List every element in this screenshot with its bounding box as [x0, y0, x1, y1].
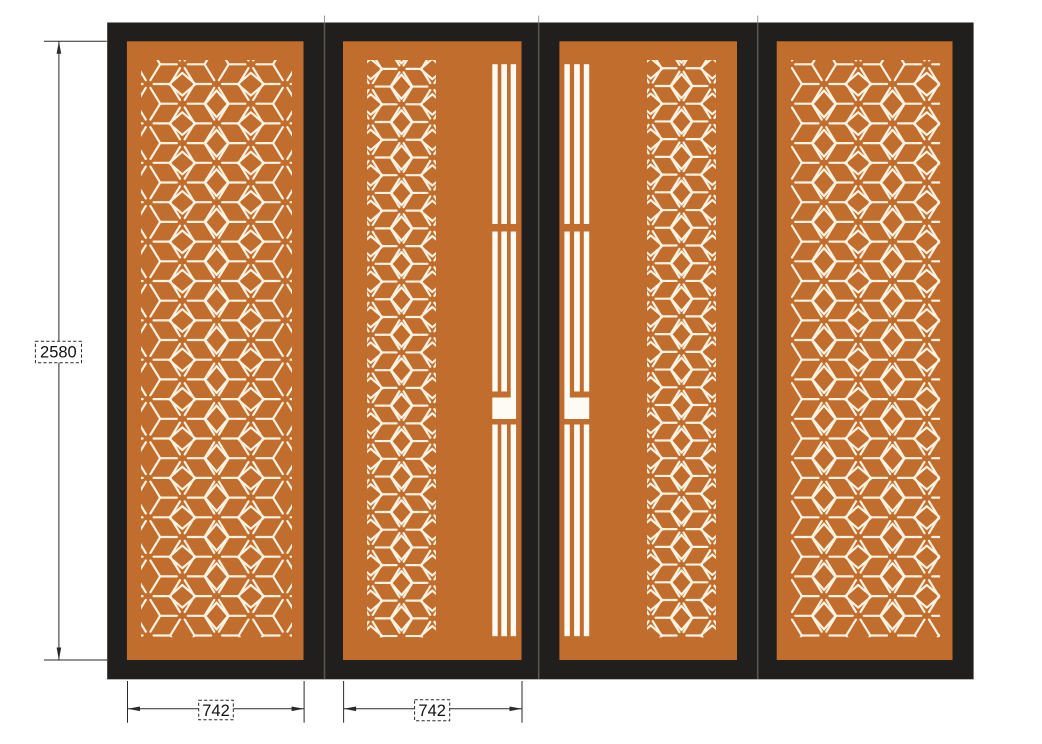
svg-text:2580: 2580	[40, 344, 77, 362]
svg-text:742: 742	[418, 702, 446, 720]
svg-text:742: 742	[202, 702, 230, 720]
